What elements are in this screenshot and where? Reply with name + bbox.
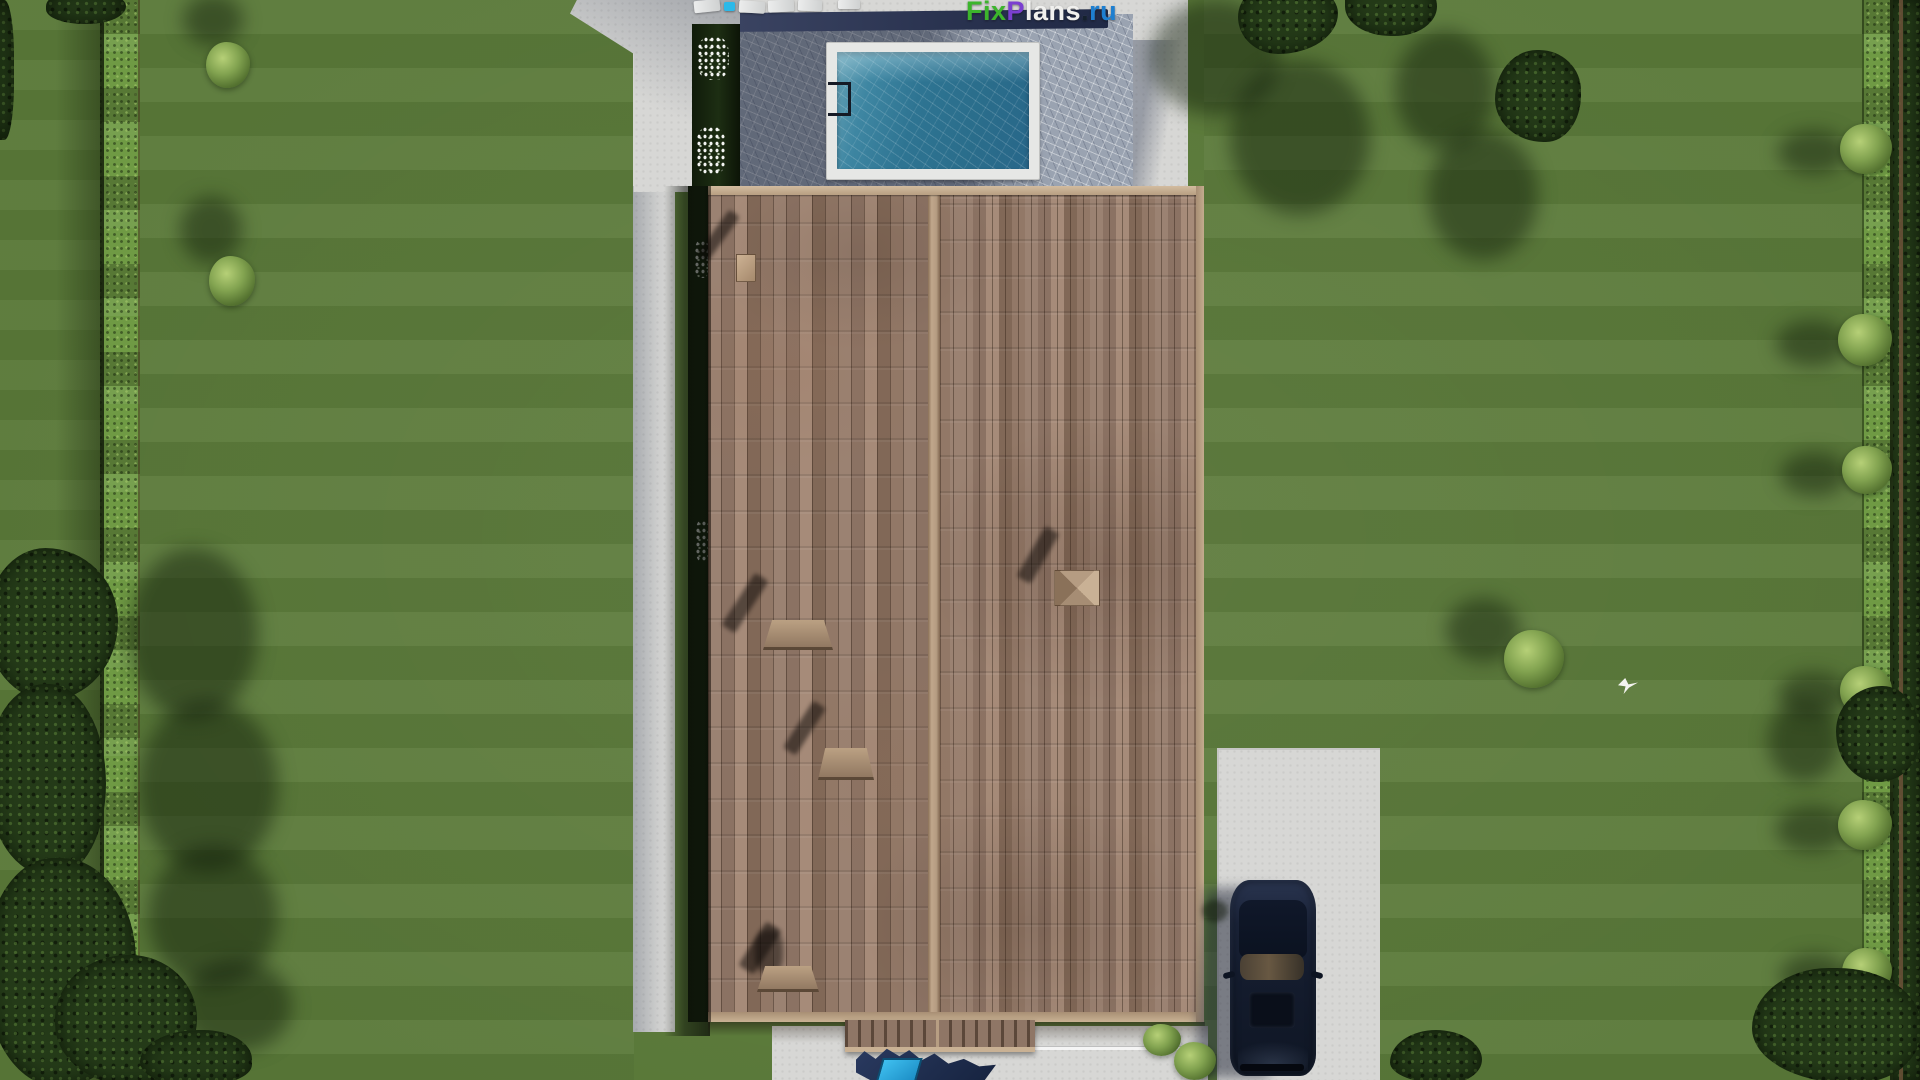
tree-canopy: [1836, 686, 1920, 782]
roof-skylight: [818, 748, 874, 780]
watermark-segment-fix: Fix: [966, 0, 1007, 25]
roof-chimney: [1054, 570, 1100, 606]
tree-canopy: [1752, 968, 1920, 1080]
fixplans-watermark: Fix P lans . ru: [966, 0, 1117, 25]
sun-lounger: [768, 0, 795, 13]
watermark-segment-lans: lans: [1025, 0, 1081, 25]
roof-mottle-overlay: [708, 186, 1204, 1022]
white-flowers: [697, 36, 729, 80]
house-roof: [708, 186, 1204, 1022]
car-sunroof: [1249, 992, 1295, 1028]
suv-car: [1230, 880, 1316, 1076]
car-shadow-on-grass: [1202, 900, 1228, 922]
fence-right: [1899, 0, 1903, 1080]
roof-skylight: [763, 620, 833, 650]
bush-shadow: [180, 196, 242, 264]
tree-shadow: [128, 548, 258, 720]
sun-lounger: [798, 0, 822, 11]
porch-ridge-line: [936, 1020, 939, 1047]
porch-roof: [845, 1020, 1035, 1052]
roof-vent: [736, 254, 756, 282]
bush-shadow: [1778, 130, 1848, 174]
roof-fascia-top: [708, 186, 1204, 195]
watermark-segment-p: P: [1007, 0, 1026, 25]
roof-skylight: [757, 966, 819, 992]
roof-edge-left: [708, 186, 711, 1022]
car-windshield-reflection: [1240, 954, 1304, 980]
sun-lounger: [838, 0, 860, 9]
aerial-render-scene: Fix P lans . ru: [0, 0, 1920, 1080]
watermark-segment-ru: ru: [1089, 0, 1117, 25]
bush-shadow: [1776, 806, 1848, 852]
pool-water-ripples: [837, 52, 1029, 169]
tree-shadow: [1768, 700, 1840, 782]
watermark-segment-dot: .: [1081, 0, 1089, 25]
roof-ridge: [928, 186, 940, 1022]
tree-canopy: [1495, 50, 1581, 142]
tree-shadow: [1428, 130, 1538, 260]
car-roof-glass: [1239, 900, 1307, 958]
house-shadow: [664, 186, 710, 1036]
pool-ladder: [828, 82, 851, 116]
roof-fascia-right: [1196, 186, 1204, 1022]
tree-shadow: [1230, 60, 1370, 215]
pool-toy: [724, 2, 735, 11]
white-flowers: [696, 126, 726, 176]
tree-canopy: [0, 0, 14, 140]
car-front-band: [1240, 1064, 1304, 1071]
bush-shadow: [1780, 452, 1848, 496]
partial-watermark-logo-cyan: [875, 1058, 922, 1080]
sun-lounger: [739, 0, 766, 14]
